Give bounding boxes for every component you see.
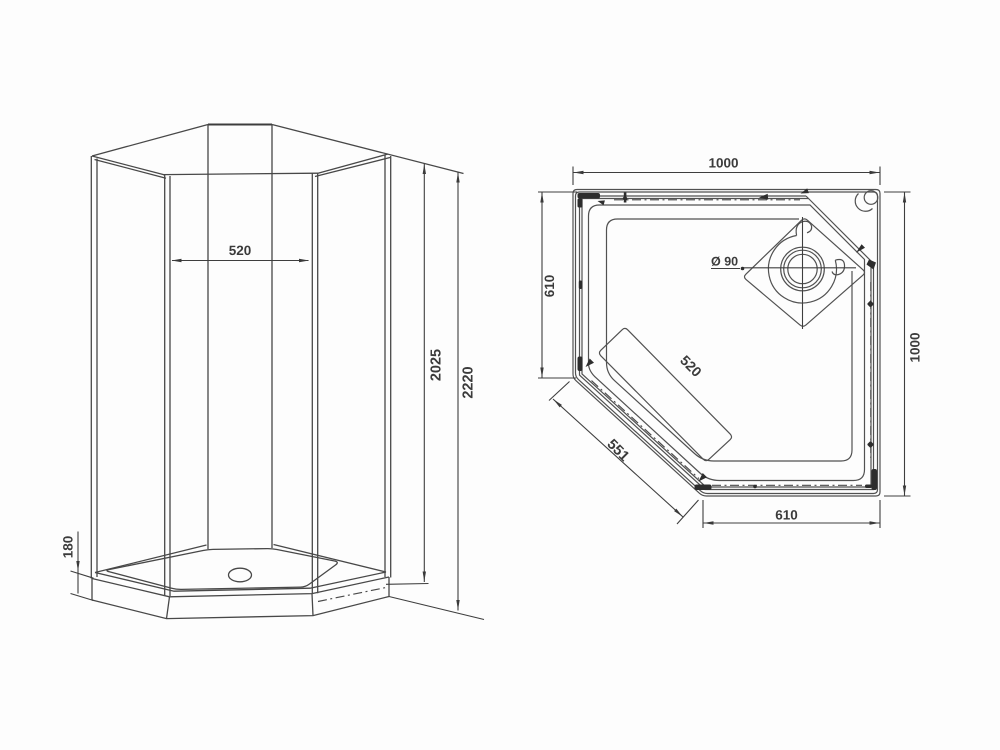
svg-text:610: 610	[775, 508, 798, 523]
svg-text:1000: 1000	[708, 155, 738, 170]
svg-text:551: 551	[604, 436, 632, 464]
svg-text:1000: 1000	[908, 332, 923, 362]
svg-text:520: 520	[677, 352, 705, 380]
svg-text:520: 520	[229, 243, 252, 258]
svg-text:Ø 90: Ø 90	[711, 255, 738, 269]
svg-text:2025: 2025	[429, 349, 445, 381]
svg-text:180: 180	[61, 536, 76, 559]
svg-text:2220: 2220	[461, 366, 477, 398]
svg-text:610: 610	[542, 275, 557, 298]
